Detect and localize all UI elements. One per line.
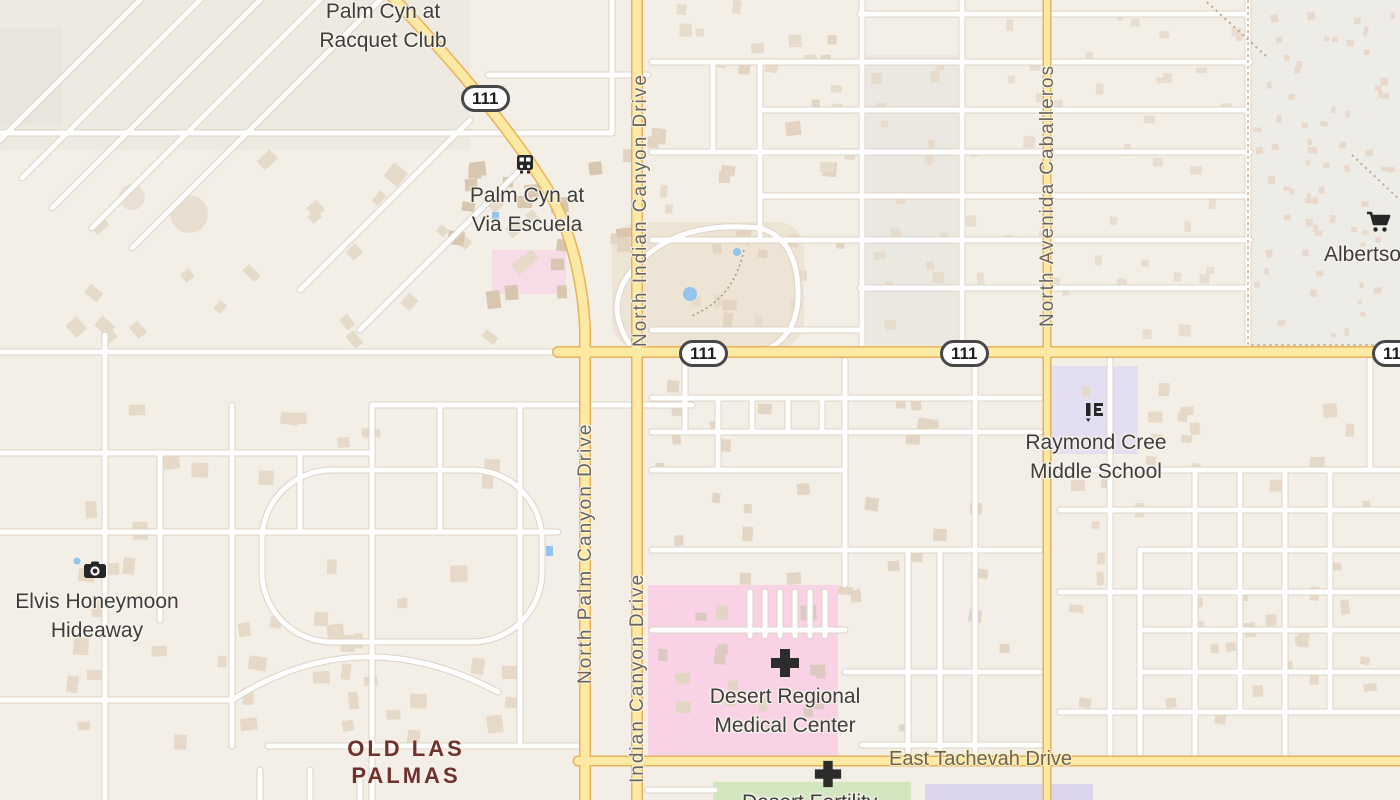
- camera-icon[interactable]: [83, 561, 107, 579]
- purple-area: [925, 784, 1093, 800]
- street-label-east-tachevah-drive: East Tachevah Drive: [889, 748, 1072, 771]
- poi-label-desert-fertility[interactable]: Desert Fertility: [742, 788, 877, 800]
- bus-icon[interactable]: [514, 153, 536, 174]
- route-shield-111: 111: [461, 85, 510, 112]
- shopping-cart-icon[interactable]: [1365, 210, 1391, 234]
- map-canvas[interactable]: 111 111 111 111 Palm Cyn at Racquet Club…: [0, 0, 1400, 800]
- poi-label-albertsons[interactable]: Albertsons: [1324, 240, 1400, 269]
- street-label-north-avenida-caballeros: North Avenida Caballeros: [1035, 45, 1061, 345]
- poi-label-desert-regional-medical-center[interactable]: Desert Regional Medical Center: [660, 682, 910, 740]
- medical-cross-icon[interactable]: [813, 759, 843, 789]
- poi-label-raymond-cree-middle-school[interactable]: Raymond Cree Middle School: [971, 428, 1221, 486]
- neighborhood-label-old-las-palmas: OLD LAS PALMAS: [281, 735, 531, 789]
- map-graphics: [0, 0, 1400, 800]
- route-shield-111: 111: [1372, 340, 1400, 367]
- route-shield-111: 111: [679, 340, 728, 367]
- poi-label-palm-cyn-via-escuela[interactable]: Palm Cyn at Via Escuela: [402, 181, 652, 239]
- school-icon[interactable]: [1082, 401, 1106, 423]
- poi-label-palm-cyn-racquet-club[interactable]: Palm Cyn at Racquet Club: [258, 0, 508, 55]
- route-shield-111: 111: [940, 340, 989, 367]
- poi-label-elvis-honeymoon-hideaway[interactable]: Elvis Honeymoon Hideaway: [0, 587, 222, 645]
- street-label-north-palm-canyon-drive: North Palm Canyon Drive: [573, 398, 599, 708]
- street-label-indian-canyon-drive: Indian Canyon Drive: [625, 555, 651, 800]
- residential-area: [862, 55, 962, 345]
- hospital-cross-icon[interactable]: [769, 647, 801, 679]
- street-label-north-indian-canyon-drive: North Indian Canyon Drive: [628, 50, 654, 370]
